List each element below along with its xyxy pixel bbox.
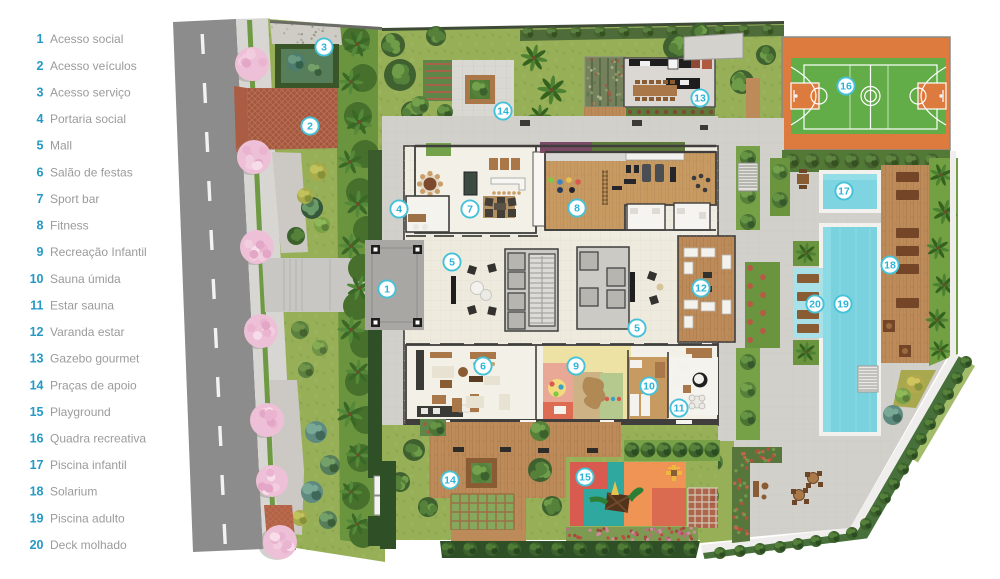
svg-text:10: 10 xyxy=(643,381,655,393)
svg-text:1: 1 xyxy=(384,284,390,296)
svg-text:7: 7 xyxy=(467,204,473,216)
svg-text:Deck molhado: Deck molhado xyxy=(50,538,127,552)
svg-text:19: 19 xyxy=(30,511,44,525)
svg-text:12: 12 xyxy=(695,283,707,295)
svg-text:17: 17 xyxy=(838,186,850,198)
svg-text:4: 4 xyxy=(396,204,402,216)
svg-text:Salão de festas: Salão de festas xyxy=(50,165,133,179)
svg-text:10: 10 xyxy=(30,272,44,286)
svg-text:19: 19 xyxy=(837,299,849,311)
svg-text:Gazebo gourmet: Gazebo gourmet xyxy=(50,352,140,366)
svg-text:Estar sauna: Estar sauna xyxy=(50,298,114,312)
svg-text:20: 20 xyxy=(30,538,44,552)
svg-text:12: 12 xyxy=(30,325,44,339)
svg-text:4: 4 xyxy=(37,112,44,126)
svg-text:16: 16 xyxy=(840,81,852,93)
svg-text:5: 5 xyxy=(449,257,455,269)
svg-text:Solarium: Solarium xyxy=(50,485,97,499)
svg-text:18: 18 xyxy=(30,485,44,499)
svg-text:15: 15 xyxy=(30,405,44,419)
svg-text:Piscina adulto: Piscina adulto xyxy=(50,511,125,525)
svg-text:7: 7 xyxy=(37,192,44,206)
svg-text:Acesso serviço: Acesso serviço xyxy=(50,85,131,99)
svg-text:2: 2 xyxy=(37,59,44,73)
svg-text:15: 15 xyxy=(579,472,591,484)
svg-text:Praças de apoio: Praças de apoio xyxy=(50,378,137,392)
svg-text:1: 1 xyxy=(37,32,44,46)
svg-text:Portaria social: Portaria social xyxy=(50,112,126,126)
svg-text:Acesso social: Acesso social xyxy=(50,32,123,46)
svg-text:11: 11 xyxy=(30,298,43,312)
svg-text:16: 16 xyxy=(30,432,44,446)
svg-text:14: 14 xyxy=(30,378,44,392)
svg-text:Acesso veículos: Acesso veículos xyxy=(50,59,137,73)
svg-text:20: 20 xyxy=(809,299,821,311)
svg-text:3: 3 xyxy=(321,42,327,54)
svg-text:Sport bar: Sport bar xyxy=(50,192,99,206)
svg-text:2: 2 xyxy=(307,121,313,133)
svg-text:3: 3 xyxy=(37,85,44,99)
svg-text:Quadra recreativa: Quadra recreativa xyxy=(50,432,146,446)
svg-text:Playground: Playground xyxy=(50,405,111,419)
svg-text:9: 9 xyxy=(37,245,44,259)
svg-text:Piscina infantil: Piscina infantil xyxy=(50,458,127,472)
svg-text:6: 6 xyxy=(480,361,486,373)
svg-text:Fitness: Fitness xyxy=(50,219,89,233)
svg-text:6: 6 xyxy=(37,165,44,179)
svg-text:9: 9 xyxy=(573,361,579,373)
svg-text:13: 13 xyxy=(694,93,706,105)
svg-text:11: 11 xyxy=(673,403,684,415)
svg-text:Recreação Infantil: Recreação Infantil xyxy=(50,245,147,259)
svg-text:Sauna úmida: Sauna úmida xyxy=(50,272,121,286)
svg-text:18: 18 xyxy=(884,260,896,272)
svg-text:5: 5 xyxy=(634,323,640,335)
svg-text:8: 8 xyxy=(37,219,44,233)
svg-text:13: 13 xyxy=(30,352,44,366)
svg-text:14: 14 xyxy=(444,475,456,487)
svg-text:Varanda estar: Varanda estar xyxy=(50,325,125,339)
svg-text:17: 17 xyxy=(30,458,44,472)
svg-text:8: 8 xyxy=(574,203,580,215)
svg-text:Mall: Mall xyxy=(50,139,72,153)
svg-text:14: 14 xyxy=(497,106,509,118)
svg-text:5: 5 xyxy=(37,139,44,153)
